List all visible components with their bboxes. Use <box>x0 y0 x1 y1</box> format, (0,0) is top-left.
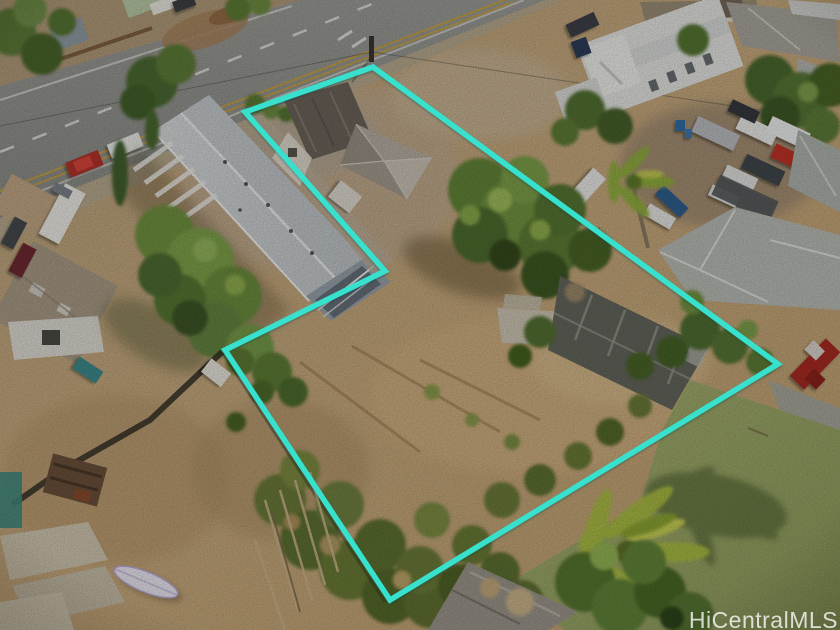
listing-photo: HiCentralMLS <box>0 0 840 630</box>
aerial-photo: HiCentralMLS <box>0 0 840 630</box>
watermark-text: HiCentralMLS <box>689 607 838 630</box>
